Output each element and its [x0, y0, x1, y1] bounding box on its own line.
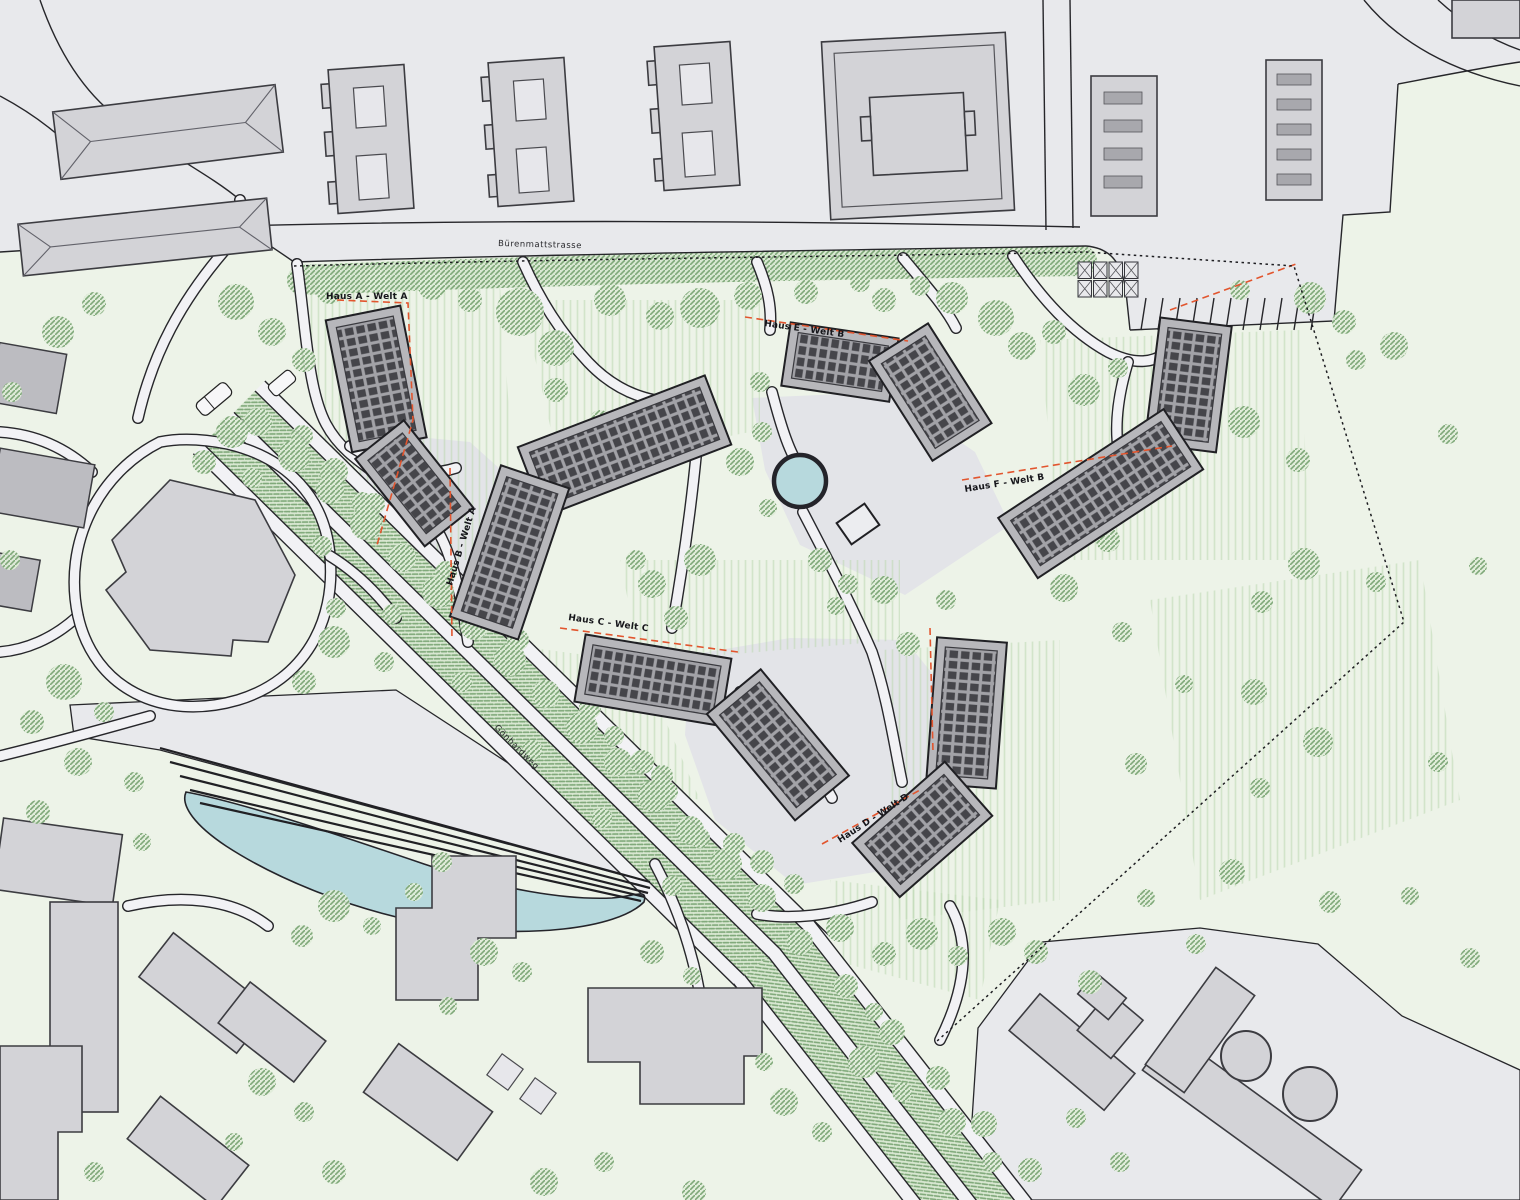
tree: [604, 726, 624, 746]
tree: [1319, 891, 1341, 913]
slab-building: [480, 58, 574, 208]
tree: [544, 378, 568, 402]
tree: [646, 302, 674, 330]
tree: [94, 702, 114, 722]
tree: [225, 1133, 243, 1151]
tree: [640, 940, 664, 964]
tree: [664, 606, 688, 630]
tree: [1401, 887, 1419, 905]
tree: [192, 450, 216, 474]
tree: [316, 476, 344, 504]
tree: [784, 874, 804, 894]
tree: [363, 493, 385, 515]
tree: [734, 282, 762, 310]
tree: [726, 448, 754, 476]
tree: [363, 917, 381, 935]
tree: [755, 1053, 773, 1071]
tree: [1175, 675, 1193, 693]
site-plan: Haus A - Welt A Haus B - Welt A Haus C -…: [0, 0, 1520, 1200]
tree: [1380, 332, 1408, 360]
tree: [638, 570, 666, 598]
tree: [1469, 557, 1487, 575]
tree: [242, 468, 262, 488]
tree: [439, 997, 457, 1015]
corner-building: [1452, 0, 1520, 38]
tree: [1346, 350, 1366, 370]
tree: [1219, 859, 1245, 885]
tree: [1251, 591, 1273, 613]
tree: [458, 288, 482, 312]
tree: [808, 548, 832, 572]
tree: [1241, 679, 1267, 705]
tree: [938, 1108, 966, 1136]
tree: [1125, 753, 1147, 775]
tree: [787, 929, 813, 955]
tree: [218, 284, 254, 320]
tree: [865, 1003, 883, 1021]
bar-building: [1091, 76, 1157, 216]
tree: [1068, 374, 1100, 406]
tree: [530, 1168, 558, 1196]
tree: [1303, 727, 1333, 757]
tree: [1078, 970, 1102, 994]
tree: [366, 270, 390, 294]
tree: [46, 664, 82, 700]
tree: [592, 808, 612, 828]
round-pond: [774, 455, 826, 507]
tree: [759, 499, 777, 517]
tree: [872, 942, 896, 966]
tree: [982, 1152, 1002, 1172]
tree: [1228, 406, 1260, 438]
tree: [248, 1068, 276, 1096]
tree: [432, 852, 452, 872]
tree: [0, 550, 20, 570]
building-segment-haus-d: [926, 637, 1007, 788]
tree: [1050, 574, 1078, 602]
storage-tank: [1283, 1067, 1337, 1121]
tree: [910, 276, 930, 296]
tree: [683, 967, 701, 985]
tree: [1230, 280, 1250, 300]
tree: [926, 1066, 950, 1090]
tree: [1137, 889, 1155, 907]
tree: [651, 765, 673, 787]
tree: [318, 626, 350, 658]
tree: [1042, 320, 1066, 344]
tree: [1018, 1158, 1042, 1182]
tree: [532, 680, 560, 708]
tree: [750, 372, 770, 392]
bar-building: [1266, 60, 1322, 200]
tree: [770, 1088, 798, 1116]
tree: [978, 300, 1014, 336]
tree: [326, 598, 346, 618]
tree: [838, 574, 858, 594]
tree: [848, 1046, 880, 1078]
tree: [374, 652, 394, 672]
tree: [26, 800, 50, 824]
tree: [292, 670, 316, 694]
tree: [872, 288, 896, 312]
tree: [258, 318, 286, 346]
tree: [948, 946, 968, 966]
tree: [594, 1152, 614, 1172]
tree: [1066, 1108, 1086, 1128]
building-label-haus-a: Haus A - Welt A: [326, 292, 408, 302]
tree: [626, 550, 646, 570]
tree: [812, 1122, 832, 1142]
tree: [512, 962, 532, 982]
tree: [1250, 778, 1270, 798]
tree: [936, 590, 956, 610]
tree: [64, 748, 92, 776]
storage-tank: [1221, 1031, 1271, 1081]
slab-building: [320, 65, 414, 215]
tree: [1288, 548, 1320, 580]
tree: [850, 272, 870, 292]
tree: [1186, 934, 1206, 954]
tree: [988, 918, 1016, 946]
tree: [382, 604, 402, 624]
tree: [318, 890, 350, 922]
tree: [662, 876, 682, 896]
tree: [594, 284, 626, 316]
tree: [470, 938, 498, 966]
tree: [750, 850, 774, 874]
tree: [496, 288, 544, 336]
garage-building: [0, 343, 67, 414]
tree: [124, 772, 144, 792]
tree: [322, 1160, 346, 1184]
tree: [1366, 572, 1386, 592]
tree: [294, 1102, 314, 1122]
tree: [388, 544, 416, 572]
tree: [1460, 948, 1480, 968]
tree: [870, 576, 898, 604]
tree: [723, 833, 745, 855]
tree: [879, 1019, 905, 1045]
tree: [826, 914, 854, 942]
tree: [84, 1162, 104, 1182]
tree: [1110, 1152, 1130, 1172]
tree: [896, 632, 920, 656]
tree: [834, 974, 858, 998]
tree: [1294, 282, 1326, 314]
site-plan-svg: Haus A - Welt A Haus B - Welt A Haus C -…: [0, 0, 1520, 1200]
tree: [630, 750, 654, 774]
tree: [971, 1111, 997, 1137]
tree: [133, 833, 151, 851]
tree: [1428, 752, 1448, 772]
tree: [827, 597, 845, 615]
tree: [405, 883, 423, 901]
tree: [244, 408, 272, 436]
tree: [794, 280, 818, 304]
tree: [680, 288, 720, 328]
tree: [906, 918, 938, 950]
tree: [292, 348, 316, 372]
tree: [312, 536, 332, 556]
tree: [82, 292, 106, 316]
tree: [1438, 424, 1458, 444]
street-hedge: [302, 261, 1082, 280]
tree: [604, 748, 632, 776]
tree: [418, 272, 446, 300]
tree: [892, 1082, 912, 1102]
tree: [748, 884, 776, 912]
tree: [676, 816, 704, 844]
courtyard-building: [821, 32, 1014, 219]
tree: [538, 330, 574, 366]
tree: [291, 925, 313, 947]
tree: [1332, 310, 1356, 334]
tree: [936, 282, 968, 314]
tree: [684, 544, 716, 576]
tree: [1108, 358, 1128, 378]
tree: [1112, 622, 1132, 642]
tree: [20, 710, 44, 734]
tree: [42, 316, 74, 348]
tree: [291, 425, 313, 447]
tree: [1286, 448, 1310, 472]
tree: [2, 382, 22, 402]
tree: [1008, 332, 1036, 360]
tree: [216, 416, 248, 448]
tree: [752, 422, 772, 442]
slab-building: [646, 42, 740, 192]
tree: [452, 672, 472, 692]
